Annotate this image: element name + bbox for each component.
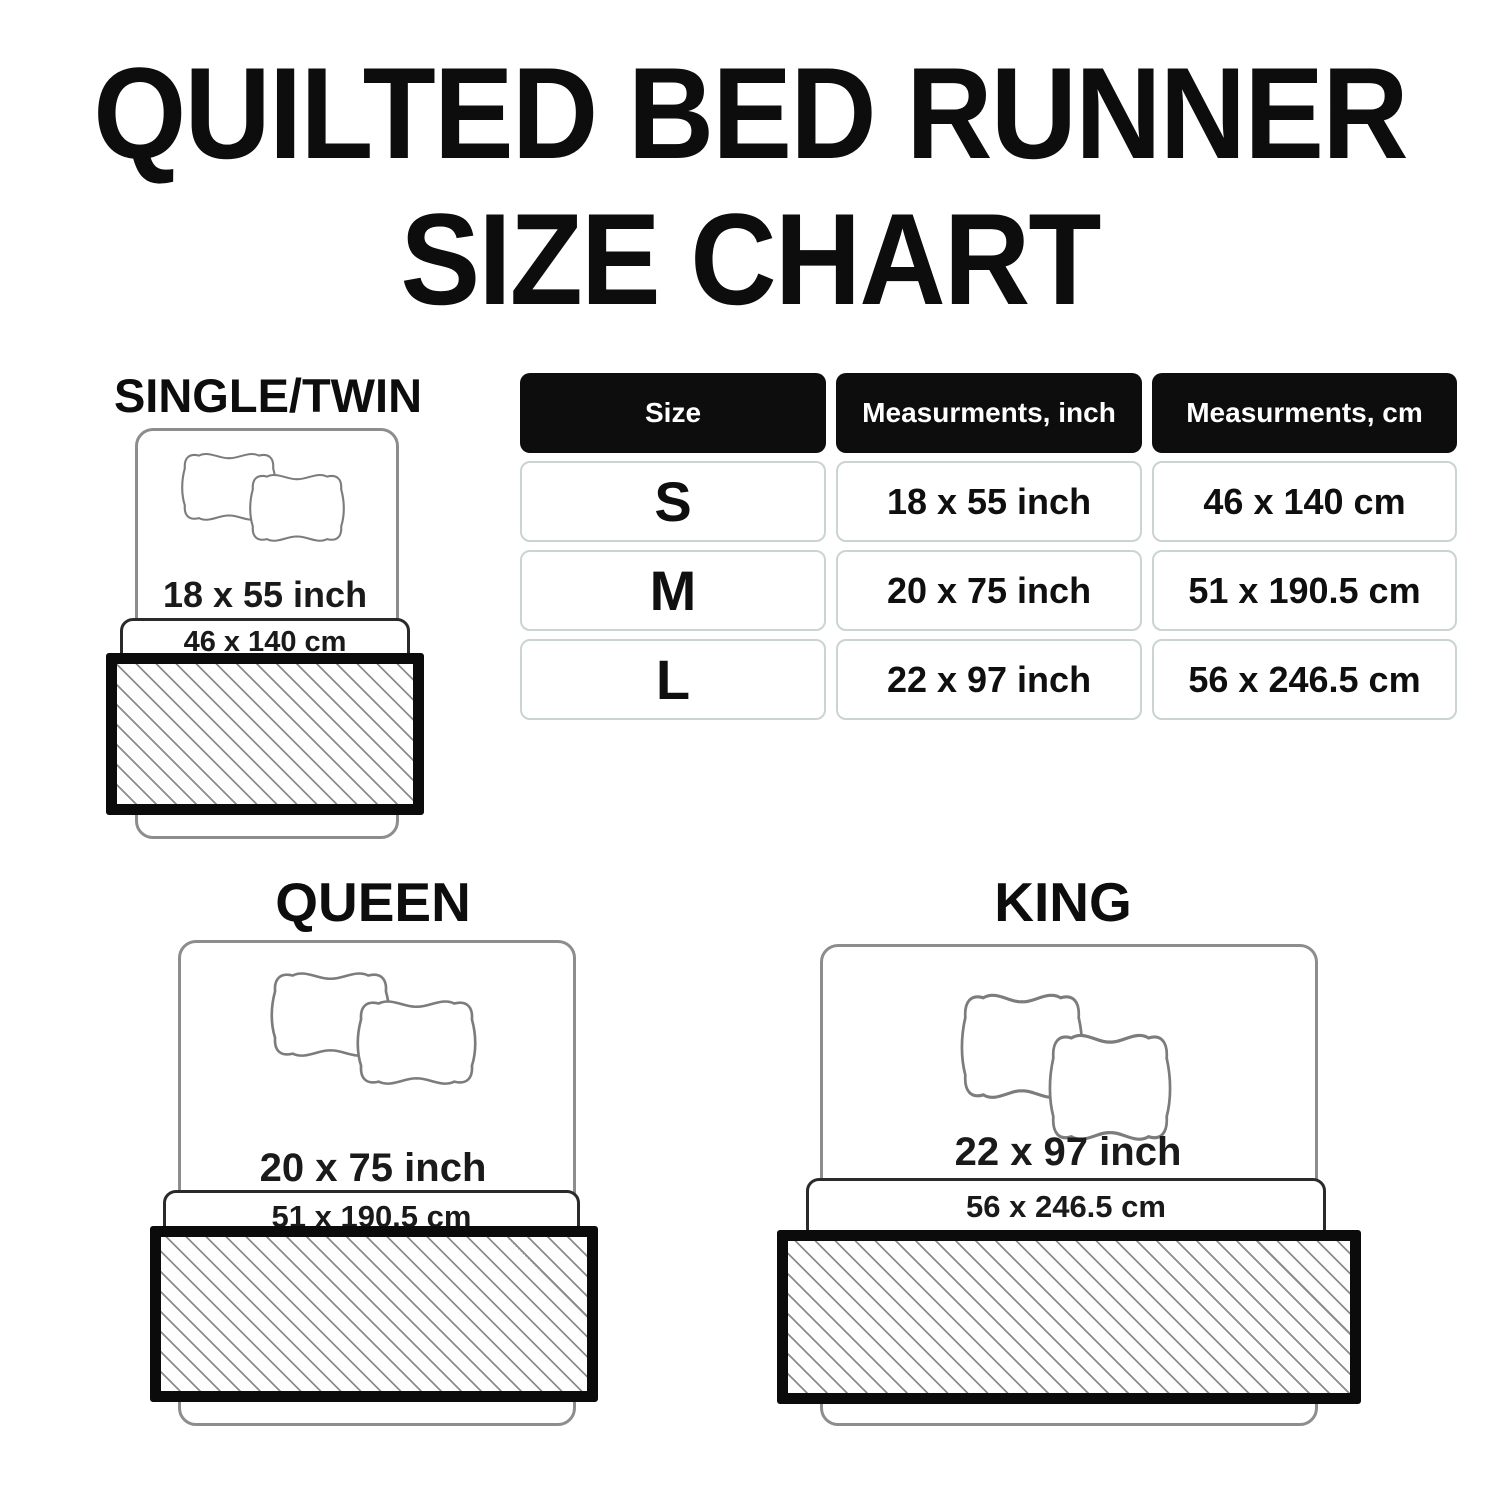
table-header-cm: Measurments, cm bbox=[1152, 373, 1457, 453]
table-cell-cm: 46 x 140 cm bbox=[1152, 461, 1457, 542]
table-cell-inch: 18 x 55 inch bbox=[836, 461, 1142, 542]
table-cell-cm: 56 x 246.5 cm bbox=[1152, 639, 1457, 720]
table-cell-cm: 51 x 190.5 cm bbox=[1152, 550, 1457, 631]
pillow-icon bbox=[244, 469, 350, 545]
king-cm-dimension: 56 x 246.5 cm bbox=[966, 1189, 1166, 1224]
table-header-inch: Measurments, inch bbox=[836, 373, 1142, 453]
page-title-line2: SIZE CHART bbox=[60, 186, 1440, 332]
king-runner-swatch bbox=[777, 1230, 1361, 1404]
pillow-icon bbox=[350, 994, 483, 1089]
table-header-size: Size bbox=[520, 373, 826, 453]
single-twin-runner-swatch bbox=[106, 653, 424, 815]
table-cell-inch: 20 x 75 inch bbox=[836, 550, 1142, 631]
queen-runner-swatch bbox=[150, 1226, 598, 1402]
table-cell-size: M bbox=[520, 550, 826, 631]
single-twin-heading: SINGLE/TWIN bbox=[103, 368, 433, 423]
king-heading: KING bbox=[913, 870, 1213, 934]
page-title-line1: QUILTED BED RUNNER bbox=[60, 40, 1440, 186]
queen-heading: QUEEN bbox=[223, 870, 523, 934]
table-cell-size: S bbox=[520, 461, 826, 542]
single-twin-inch-dimension: 18 x 55 inch bbox=[110, 574, 420, 616]
king-inch-dimension: 22 x 97 inch bbox=[918, 1130, 1218, 1175]
size-table: Size Measurments, inch Measurments, cm S… bbox=[520, 373, 1457, 720]
pillow-icon bbox=[1042, 1026, 1178, 1146]
table-cell-size: L bbox=[520, 639, 826, 720]
page-title: QUILTED BED RUNNER SIZE CHART bbox=[60, 40, 1440, 332]
table-cell-inch: 22 x 97 inch bbox=[836, 639, 1142, 720]
queen-inch-dimension: 20 x 75 inch bbox=[223, 1146, 523, 1191]
size-chart-infographic: QUILTED BED RUNNER SIZE CHART SINGLE/TWI… bbox=[0, 0, 1500, 1500]
